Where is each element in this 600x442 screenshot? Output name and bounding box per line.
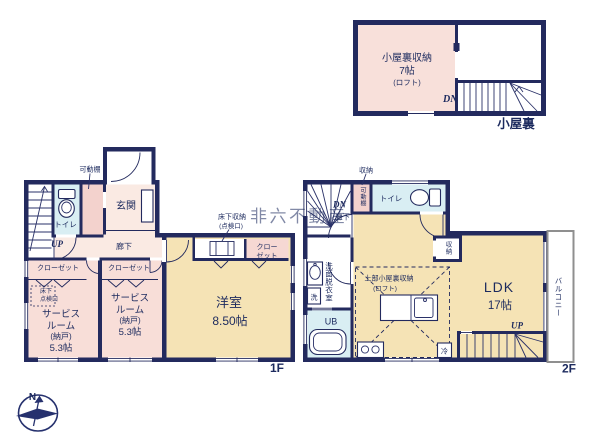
f2-stairs-up-label: UP bbox=[511, 321, 523, 331]
f1-stairs-up-label: UP bbox=[51, 239, 63, 249]
f1-toilet-icon bbox=[59, 190, 76, 218]
f1-floor-label: 1F bbox=[270, 361, 284, 375]
f1-hatch-label1: 床下 bbox=[40, 287, 52, 295]
f1-hallway-label: 廊下 bbox=[116, 241, 132, 251]
f1-service-b-line3: (納戸) bbox=[119, 315, 141, 325]
f1-toilet-label: トイレ bbox=[54, 220, 77, 229]
f1-service-a-line1: サービス bbox=[42, 309, 80, 320]
floor-plan-page: 小屋裏収納 7帖 (ロフト) DN 小屋裏 bbox=[0, 0, 600, 437]
f2-toilet-label: トイレ bbox=[380, 194, 403, 203]
attic-stairs-dn-label: DN bbox=[442, 94, 458, 105]
attic-storage-size: 7帖 bbox=[399, 64, 415, 77]
f1-hallway-area bbox=[55, 235, 163, 258]
f1-service-b-line2: ルーム bbox=[116, 305, 144, 316]
attic-storage-note: (ロフト) bbox=[393, 78, 421, 87]
f1-movable-shelf-label: 可動棚 bbox=[80, 165, 101, 174]
kitchen-counter-icon bbox=[381, 295, 438, 321]
f1-western-room-label: 洋室 bbox=[216, 295, 242, 310]
f2-ldk-size: 17帖 bbox=[488, 298, 512, 312]
watermark: 非六不動産 bbox=[250, 207, 348, 226]
f2-balcony-label: バルコニー bbox=[554, 277, 563, 317]
attic-floor-label: 小屋裏 bbox=[496, 116, 535, 131]
attic-storage-label: 小屋裏収納 bbox=[382, 51, 432, 64]
f2-storage-top-label: 収納 bbox=[359, 166, 373, 175]
f1-underfloor-label2: (点検口) bbox=[219, 221, 243, 230]
attic-void bbox=[458, 25, 541, 80]
f1-entrance-label: 玄関 bbox=[116, 199, 136, 212]
f1-porch bbox=[107, 152, 152, 184]
stove-icon bbox=[358, 342, 384, 358]
f2-fridge-label: 冷 bbox=[441, 347, 448, 356]
f1-service-b-line1: サービス bbox=[111, 293, 149, 304]
f1-closet-c-line2: ゼット bbox=[257, 251, 278, 260]
attic-plan: 小屋裏収納 7帖 (ロフト) DN 小屋裏 bbox=[353, 20, 546, 131]
f1-shelf-closet bbox=[80, 185, 104, 235]
f1-service-a-line2: ルーム bbox=[47, 321, 75, 332]
f1-service-b-line4: 5.3帖 bbox=[119, 326, 142, 338]
bathtub-icon bbox=[310, 330, 347, 355]
f2-washer-label: 洗 bbox=[311, 293, 318, 302]
floor-plan-drawing: 小屋裏収納 7帖 (ロフト) DN 小屋裏 bbox=[0, 0, 600, 437]
f2-ldk-label: LDK bbox=[484, 279, 514, 295]
f2-floor-label: 2F bbox=[562, 362, 576, 376]
f2-loft-label2: (ロフト) bbox=[373, 285, 397, 293]
f1-closet-b-label: クローゼット bbox=[108, 263, 150, 272]
washbasin-icon bbox=[308, 262, 323, 285]
f1-service-a-line3: (納戸) bbox=[50, 331, 72, 341]
shoe-cabinet-icon bbox=[142, 190, 154, 222]
f1-underfloor-label1: 床下収納 bbox=[218, 212, 246, 221]
f1-closet-c-line1: クロー bbox=[257, 243, 278, 251]
f2-unit-bath-label: UB bbox=[325, 317, 338, 327]
f1-service-a-line4: 5.3帖 bbox=[50, 342, 73, 354]
compass-n-label: N bbox=[29, 392, 36, 403]
f2-loft-label1: 上部小屋裏収納 bbox=[365, 274, 414, 283]
f1-hatch-label2: 点検口 bbox=[40, 295, 58, 303]
f1-western-room-size: 8.50帖 bbox=[212, 313, 247, 328]
f2-movable-shelf-label: 可動棚 bbox=[359, 187, 366, 207]
f2-ldk-west bbox=[354, 215, 446, 358]
f2-toilet-icon bbox=[411, 189, 441, 206]
f2-washroom-label: 洗面脱衣室 bbox=[324, 261, 333, 302]
f1-closet-a-label: クローゼット bbox=[37, 263, 79, 272]
